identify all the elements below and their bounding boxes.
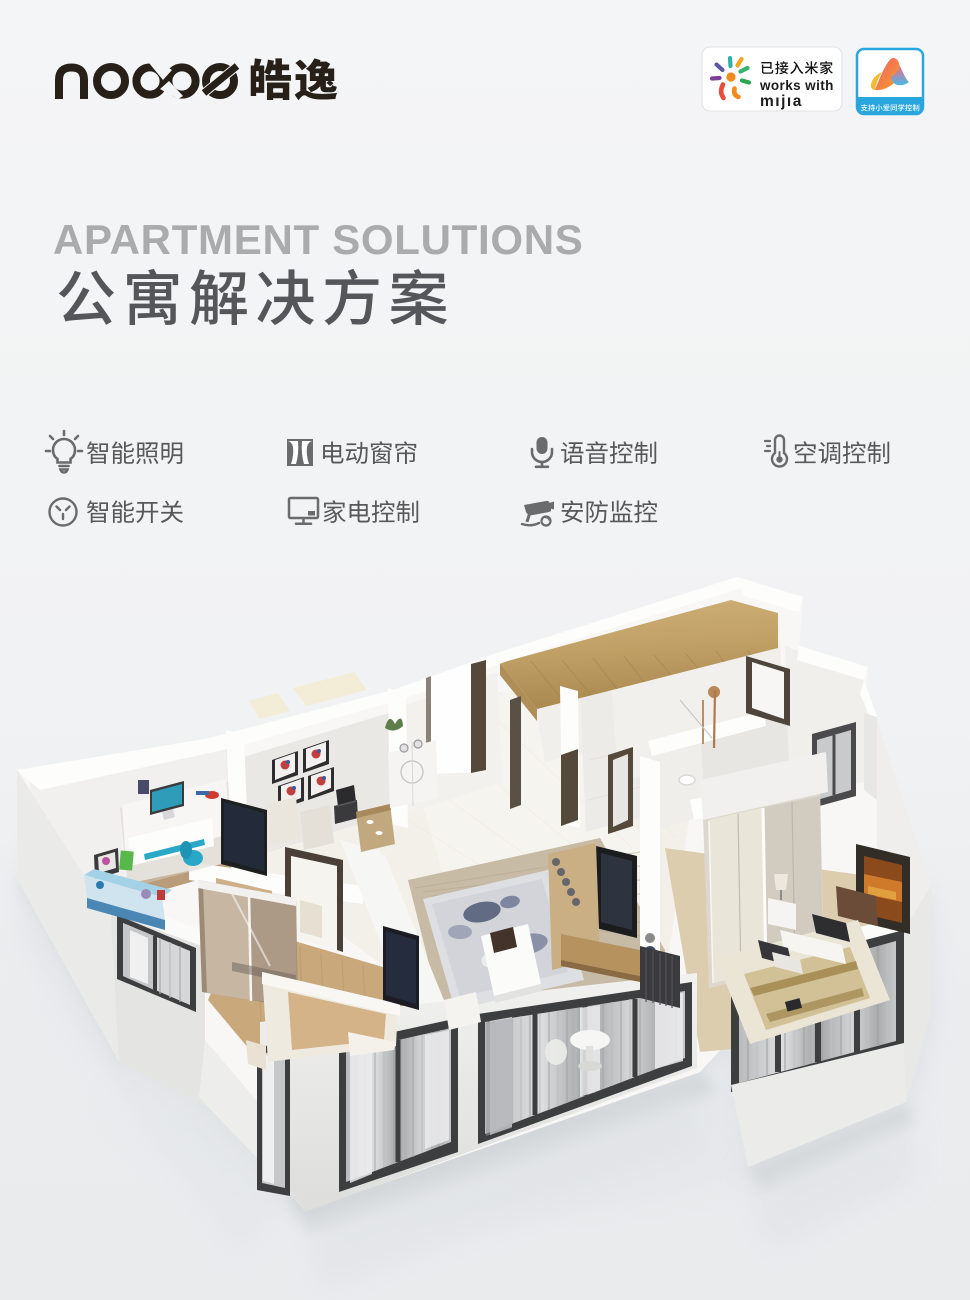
svg-text:works with: works with bbox=[759, 78, 834, 93]
svg-text:mıjıa: mıjıa bbox=[760, 93, 803, 110]
svg-text:APARTMENT SOLUTIONS: APARTMENT SOLUTIONS bbox=[53, 216, 584, 263]
